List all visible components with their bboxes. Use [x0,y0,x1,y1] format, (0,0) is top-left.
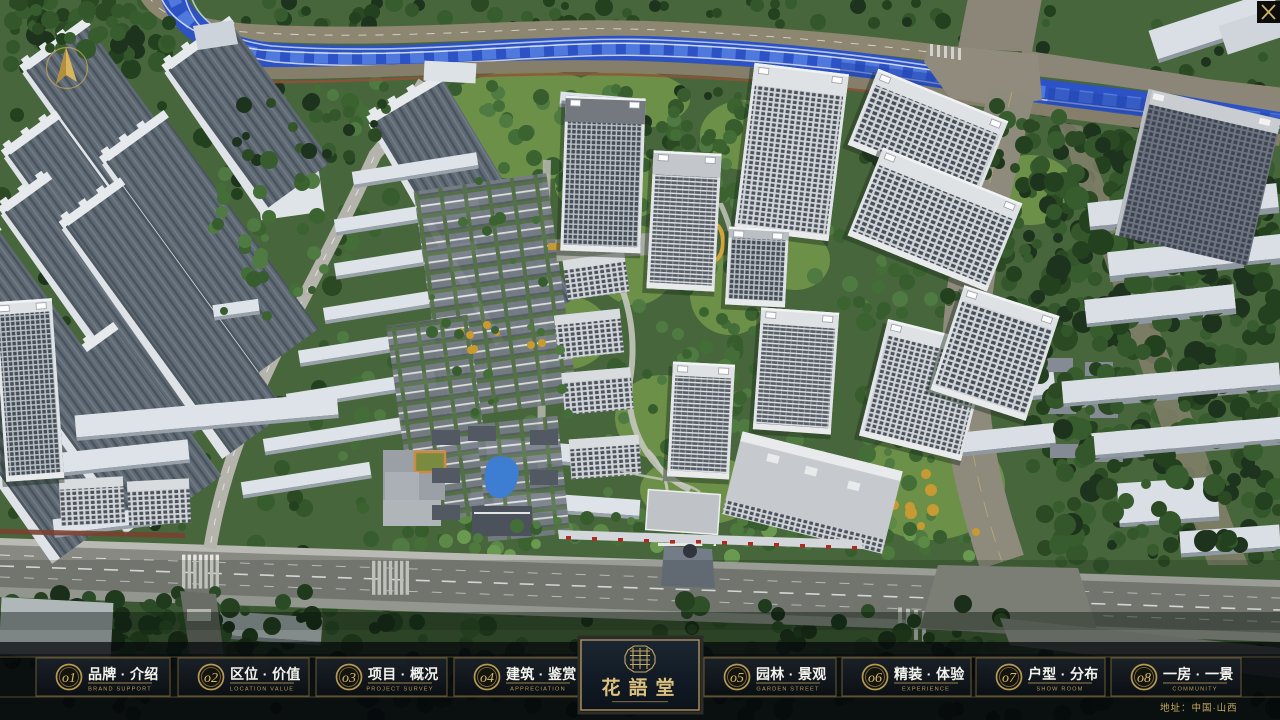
svg-text:品牌 · 介绍: 品牌 · 介绍 [88,666,159,682]
svg-text:o1: o1 [62,671,76,686]
svg-text:园林 · 景观: 园林 · 景观 [756,666,827,682]
svg-text:BRAND SUPPORT: BRAND SUPPORT [88,687,152,693]
svg-text:APPRECIATION: APPRECIATION [510,687,566,693]
svg-text:项目 · 概况: 项目 · 概况 [368,666,439,682]
svg-text:建筑 · 鉴赏: 建筑 · 鉴赏 [506,666,577,682]
svg-text:SHOW ROOM: SHOW ROOM [1036,687,1083,693]
svg-text:o5: o5 [730,671,744,686]
svg-text:o8: o8 [1137,671,1151,686]
svg-text:花語堂: 花語堂 [601,676,682,699]
svg-text:o6: o6 [868,671,882,686]
svg-text:o3: o3 [342,671,356,686]
svg-text:户型 · 分布: 户型 · 分布 [1028,666,1099,682]
svg-text:地址：中国·山西: 地址：中国·山西 [1160,702,1238,714]
svg-text:o2: o2 [204,671,218,686]
svg-text:PROJECT SURVEY: PROJECT SURVEY [366,687,433,693]
svg-text:一房 · 一景: 一房 · 一景 [1163,666,1234,682]
svg-text:精装 · 体验: 精装 · 体验 [894,666,965,682]
svg-text:o4: o4 [480,671,494,686]
svg-text:EXPERIENCE: EXPERIENCE [902,687,950,693]
svg-text:区位 · 价值: 区位 · 价值 [230,666,301,682]
svg-text:GARDEN STREET: GARDEN STREET [756,687,819,693]
svg-text:COMMUNITY: COMMUNITY [1172,687,1217,693]
svg-text:o7: o7 [1002,671,1017,686]
svg-text:LOCATION VALUE: LOCATION VALUE [230,687,294,693]
